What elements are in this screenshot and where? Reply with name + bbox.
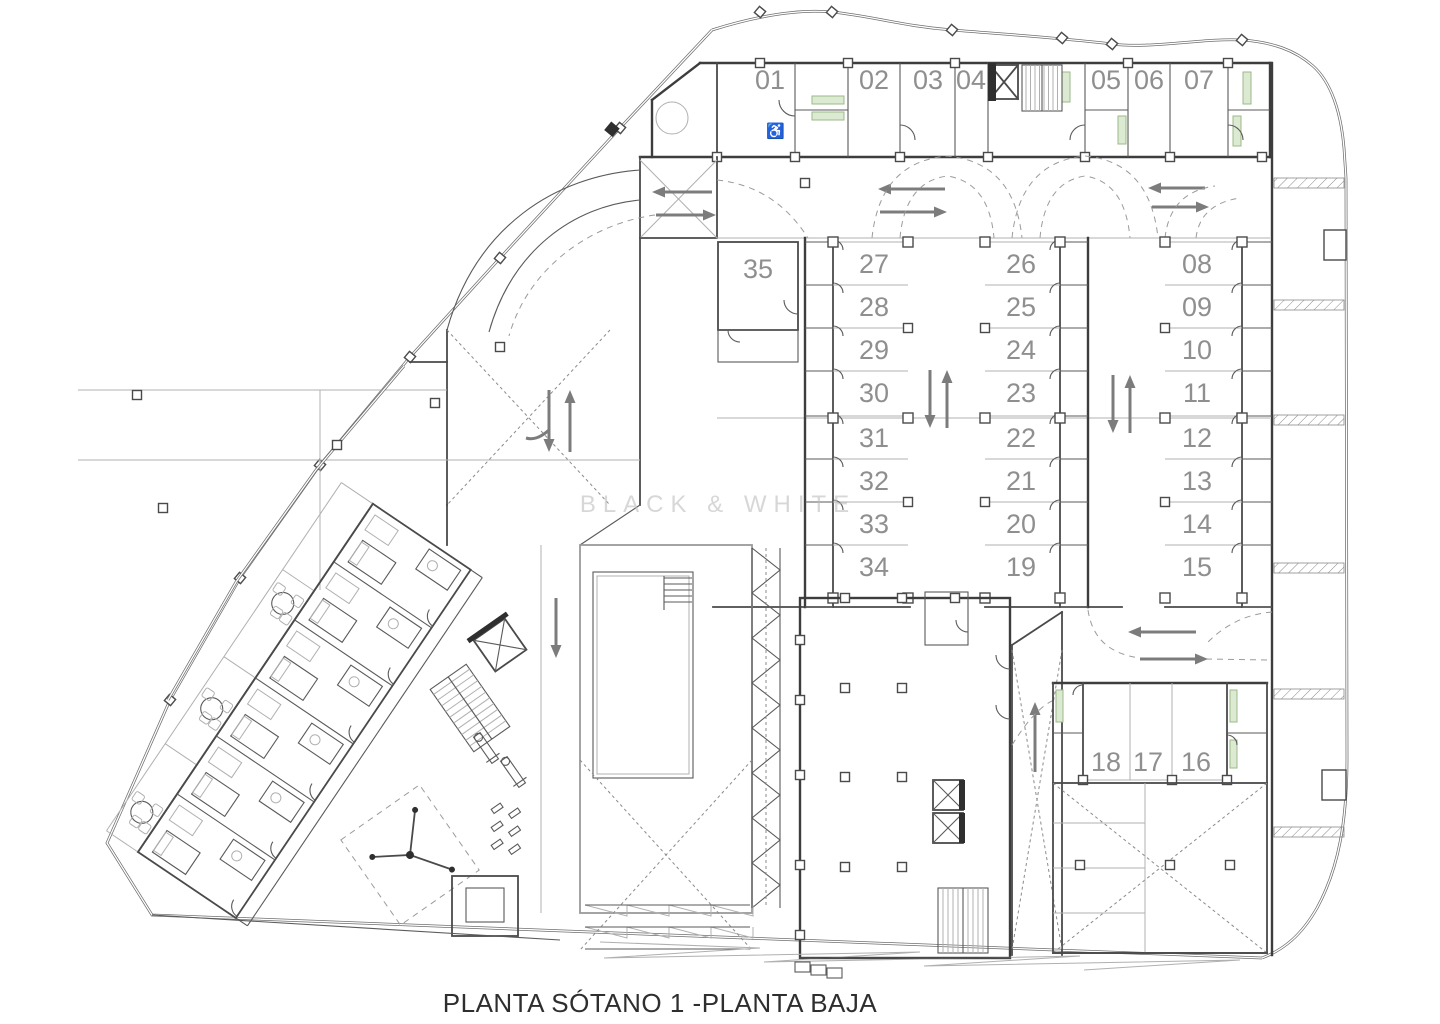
- parking-space-label: 20: [1006, 509, 1036, 539]
- parking-space-label: 21: [1006, 466, 1036, 496]
- parking-space-label: 07: [1184, 65, 1214, 95]
- direction-arrow: [544, 439, 555, 452]
- direction-arrow: [1128, 627, 1141, 638]
- parking-space-label: 26: [1006, 249, 1036, 279]
- parking-space-label: 12: [1182, 423, 1212, 453]
- plan-title: PLANTA SÓTANO 1 -PLANTA BAJA: [443, 988, 878, 1018]
- apartment-wing: [106, 483, 530, 936]
- direction-arrow: [878, 184, 891, 195]
- parking-space-label: 03: [913, 65, 943, 95]
- parking-space-label: 02: [859, 65, 889, 95]
- direction-arrow: [703, 210, 716, 221]
- parking-space-label: 13: [1182, 466, 1212, 496]
- parking-space-label: 35: [743, 254, 773, 284]
- parking-space-label: 01: [755, 65, 785, 95]
- parking-space-label: 08: [1182, 249, 1212, 279]
- direction-arrow: [1125, 375, 1136, 388]
- direction-arrow: [565, 390, 576, 403]
- direction-arrow: [1195, 654, 1208, 665]
- entry-ramp: [447, 157, 717, 545]
- parking-space-label: 16: [1181, 747, 1211, 777]
- site-boundary: [107, 6, 1347, 958]
- direction-arrow: [1108, 420, 1119, 433]
- floorplan-page: 0102030405060735272829303132333426252423…: [0, 0, 1440, 1024]
- accessible-parking-icon: ♿: [766, 122, 785, 140]
- direction-arrow: [551, 645, 562, 658]
- direction-arrow: [934, 207, 947, 218]
- retaining-wall-ties: [1274, 178, 1346, 837]
- pool-zone: [541, 545, 780, 950]
- parking-space-label: 18: [1091, 747, 1121, 777]
- direction-arrow: [652, 187, 665, 198]
- parking-space-label: 22: [1006, 423, 1036, 453]
- parking-space-label: 10: [1182, 335, 1212, 365]
- parking-space-label: 14: [1182, 509, 1212, 539]
- parking-space-label: 19: [1006, 552, 1036, 582]
- parking-space-label: 05: [1091, 65, 1121, 95]
- parking-space-label: 33: [859, 509, 889, 539]
- bottom-strip: [152, 915, 1267, 978]
- parking-space-label: 31: [859, 423, 889, 453]
- parking-space-label: 27: [859, 249, 889, 279]
- parking-space-label: 28: [859, 292, 889, 322]
- parking-space-label: 29: [859, 335, 889, 365]
- direction-arrow: [925, 415, 936, 428]
- central-building: [796, 592, 1063, 958]
- parking-space-label: 15: [1182, 552, 1212, 582]
- parking-space-label: 30: [859, 378, 889, 408]
- parking-space-label: 17: [1133, 747, 1163, 777]
- parking-space-label: 04: [956, 65, 986, 95]
- direction-arrow: [1148, 183, 1161, 194]
- parking-space-label: 11: [1183, 378, 1211, 408]
- floorplan-drawing: 0102030405060735272829303132333426252423…: [0, 0, 1440, 1024]
- parking-space-label: 25: [1006, 292, 1036, 322]
- top-aisle-circulation: [717, 156, 1240, 238]
- bottom-right-block: 181716: [1053, 683, 1267, 953]
- top-parking-row: 01020304050607: [640, 59, 1270, 162]
- parking-space-label: 24: [1006, 335, 1036, 365]
- parking-space-label: 09: [1182, 292, 1212, 322]
- direction-arrow: [1196, 202, 1209, 213]
- direction-arrow: [1030, 702, 1041, 715]
- direction-arrow: [942, 370, 953, 383]
- watermark: BLACK & WHITE: [580, 491, 856, 518]
- parking-space-label: 06: [1134, 65, 1164, 95]
- parking-space-label: 34: [859, 552, 889, 582]
- parking-space-label: 32: [859, 466, 889, 496]
- parking-space-label: 23: [1006, 378, 1036, 408]
